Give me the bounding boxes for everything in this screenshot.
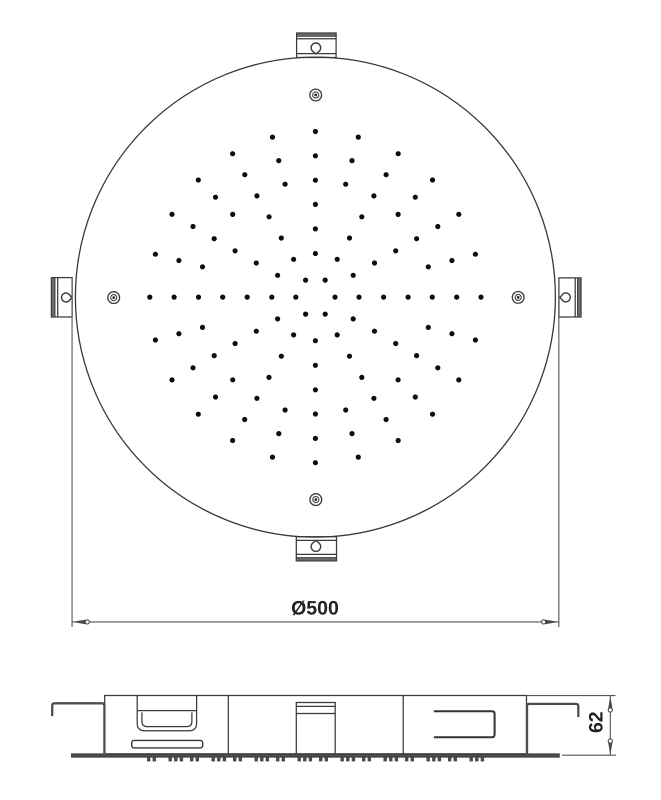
svg-text:Ø500: Ø500 <box>291 598 339 620</box>
svg-text:62: 62 <box>585 711 607 733</box>
